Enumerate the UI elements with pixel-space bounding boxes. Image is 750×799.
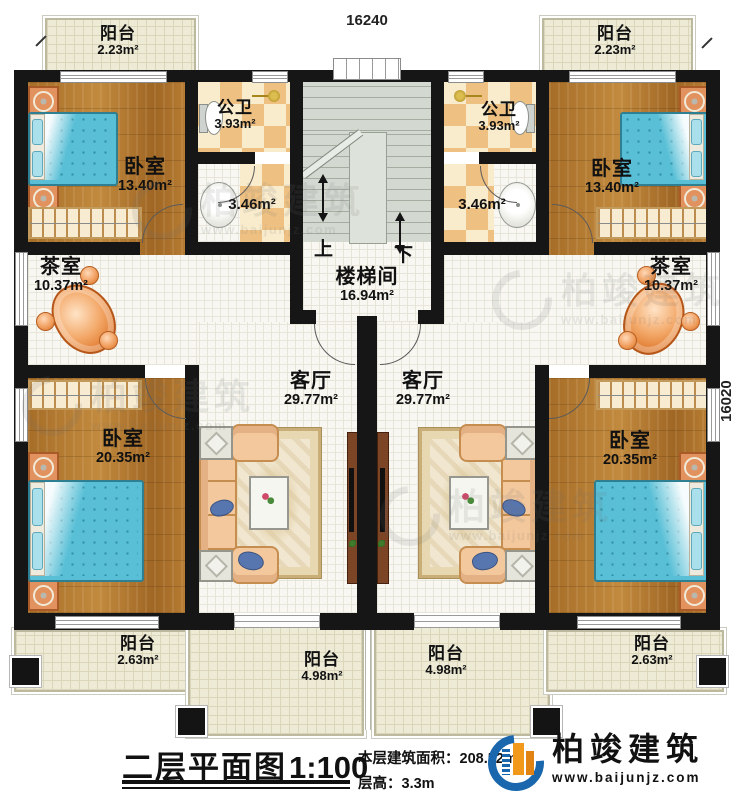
watermark-logo-icon [480,258,565,343]
sheet-fold [649,482,689,576]
room-name: 阳台 [428,644,464,663]
wall [431,70,444,322]
watermark-url: www.baijunjz.com [201,222,365,237]
floor-area-label: 本层建筑面积： [358,751,460,767]
room-area: 13.40m² [585,180,639,196]
wall [479,152,536,164]
watermark: 柏竣建筑 www.baijunjz.com [132,180,365,240]
watermark: 柏竣建筑 www.baijunjz.com [380,486,613,546]
sheet-fold [45,482,85,576]
room-area: 16.94m² [340,288,394,304]
stool-icon [99,331,118,350]
wall [500,613,535,630]
window-icon [577,616,681,629]
tv-icon [349,468,354,532]
room-label-balcony-bottom-center-right: 阳台 4.98m² [396,644,496,678]
wall [431,242,549,255]
room-name: 茶室 [40,256,82,278]
room-name: 阳台 [304,650,340,669]
room-label-balcony-top-right: 阳台 2.23m² [565,24,665,58]
floor-height-label: 层高： [358,776,402,792]
room-label-bedroom-bottom-right: 卧室 20.35m² [580,430,680,469]
watermark-logo-icon [10,364,95,449]
room-name: 客厅 [402,370,444,392]
wardrobe-icon [28,207,142,239]
dimension-right: 16020 [718,332,735,422]
side-table-icon [199,550,233,582]
wall [198,152,255,164]
room-name: 阳台 [100,24,136,43]
watermark-name: 柏竣建筑 [91,379,255,415]
room-label-bath-left: 公卫 3.93m² [198,98,272,132]
wall [290,310,316,324]
logo-building-bar [502,749,510,775]
window-icon [448,71,484,83]
wall [589,365,720,378]
room-name: 公卫 [217,98,253,117]
watermark-logo-icon [120,168,205,253]
room-area: 20.35m² [603,452,657,468]
room-name: 阳台 [634,634,670,653]
room-label-bedroom-top-right: 卧室 13.40m² [557,158,667,197]
room-label-balcony-bottom-center-left: 阳台 4.98m² [272,650,372,684]
room-area: 3.93m² [214,117,255,132]
watermark-url: www.baijunjz.com [91,418,255,433]
stool-icon [618,331,637,350]
pillow-icon [691,119,702,145]
wall [418,310,444,324]
armchair-icon [459,424,507,462]
room-name: 阳台 [597,24,633,43]
watermark-logo-icon [368,474,453,559]
room-name: 公卫 [481,100,517,119]
brand-website: www.baijunjz.com [552,770,704,785]
wall [14,242,140,255]
stair-window-icon [333,58,401,80]
floor-height-value: 3.3m [402,776,435,792]
stair-down-label: 下 [394,240,413,267]
sheet-fold [45,114,77,180]
dimension-top: 16240 [317,12,417,29]
room-area: 3.46m² [458,197,506,214]
room-name: 楼梯间 [336,266,399,288]
watermark-url: www.baijunjz.com [449,528,613,543]
floor-height-stat: 层高：3.3m [358,772,435,793]
wall [185,242,303,255]
room-name: 卧室 [609,430,651,452]
window-icon [55,616,159,629]
room-label-bath-right: 公卫 3.93m² [462,100,536,134]
room-label-balcony-bottom-right: 阳台 2.63m² [602,634,702,668]
pillow-icon [32,532,43,570]
title-underline [122,780,350,784]
watermark-url: www.baijunjz.com [561,312,725,327]
room-area: 2.63m² [631,653,672,668]
coffee-table-icon [249,476,289,530]
wall [14,70,28,630]
room-area: 2.23m² [97,43,138,58]
wall [357,316,377,616]
room-label-living-left: 客厅 29.77m² [261,370,361,409]
room-area: 4.98m² [301,669,342,684]
room-area: 4.98m² [425,663,466,678]
room-label-tea-left: 茶室 10.37m² [18,256,104,295]
wall [536,70,549,255]
room-name: 客厅 [290,370,332,392]
brand-name: 柏竣建筑 [552,733,704,765]
room-label-stairwell: 楼梯间 16.94m² [317,266,417,305]
sliding-door-icon [414,615,500,628]
stair-steps-right [385,134,431,242]
room-label-balcony-bottom-left: 阳台 2.63m² [88,634,188,668]
bed-icon [28,480,144,582]
room-label-living-right: 客厅 29.77m² [373,370,473,409]
title-underline [122,787,350,789]
wardrobe-icon [596,207,710,239]
balcony-post [10,656,41,687]
wall [594,242,720,255]
window-icon [252,71,288,83]
wardrobe-icon [596,380,710,410]
wall [320,613,414,630]
room-label-wash-right: 3.46m² [447,197,517,214]
logo-building-bar [513,743,524,775]
watermark-name: 柏竣建筑 [449,489,613,525]
room-area: 10.37m² [34,278,88,294]
pillow-icon [32,119,43,145]
room-label-balcony-top-left: 阳台 2.23m² [68,24,168,58]
wall [199,613,234,630]
logo-building-bar [526,751,534,775]
pillow-icon [32,488,43,526]
watermark: 柏竣建筑 www.baijunjz.com [22,376,255,436]
pillow-icon [691,151,702,177]
watermark-name: 柏竣建筑 [561,273,725,309]
room-area: 29.77m² [284,392,338,408]
floor-plan: 阳台 2.23m² 阳台 2.23m² 卧室 13.40m² 卧室 13.40m… [0,0,750,799]
brand-logo-icon [488,733,544,789]
room-area: 29.77m² [396,392,450,408]
pillow-icon [691,488,702,526]
plant-icon [349,540,356,547]
sliding-door-icon [234,615,320,628]
room-name: 阳台 [120,634,156,653]
stool-icon [36,312,55,331]
room-area: 2.23m² [594,43,635,58]
watermark-name: 柏竣建筑 [201,183,365,219]
stair-steps-top [303,86,431,134]
nightstand-icon [28,580,59,611]
room-name: 卧室 [591,158,633,180]
pillow-icon [32,151,43,177]
side-table-icon [505,426,539,460]
window-icon [60,71,167,83]
room-area: 3.93m² [478,119,519,134]
brand-logo: 柏竣建筑 www.baijunjz.com [488,733,704,789]
dimension-tick-icon [701,37,712,48]
pillow-icon [691,532,702,570]
balcony-post [176,706,207,737]
room-area: 20.35m² [96,450,150,466]
room-name: 卧室 [124,156,166,178]
window-icon [569,71,676,83]
nightstand-icon [28,452,59,483]
room-area: 2.63m² [117,653,158,668]
watermark: 柏竣建筑 www.baijunjz.com [492,270,725,330]
side-table-icon [505,550,539,582]
